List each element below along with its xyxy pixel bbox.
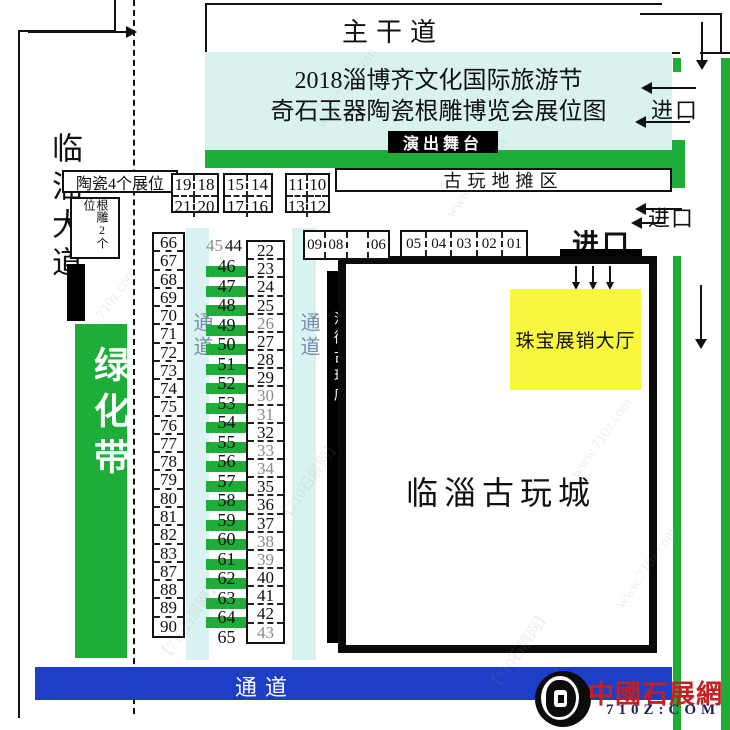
booth-cell: 60 [206, 530, 247, 549]
booth-cell: 78 [154, 453, 183, 471]
booth-cell: 87 [154, 563, 183, 581]
booth-cell: 11 [287, 175, 308, 197]
booth-cell: 57 [206, 472, 247, 491]
booth-cell: 24 [248, 278, 283, 296]
booth-cell: 37 [248, 515, 283, 533]
logo-stone-dot [558, 695, 564, 703]
gate-arrow-1 [575, 266, 577, 283]
top-booth-box: 19182120 [171, 173, 219, 213]
booth-cell: 49 [206, 316, 247, 335]
right-green-seg2 [672, 140, 685, 188]
entrance2-label: 进口 [648, 201, 694, 233]
ceramic-label-box: 陶瓷4个展位 [62, 170, 178, 193]
booth-cell: 12 [308, 197, 329, 217]
booth-cell: 23 [248, 260, 283, 278]
bottom-aisle-text: 通道 [235, 670, 295, 702]
topright-border-line [640, 13, 722, 15]
booth-cell: 70 [154, 307, 183, 325]
expo-floor-map: 主干道 临淄大道 2018淄博齐文化国际旅游节 奇石玉器陶瓷根雕博览会展位图 演… [0, 0, 730, 730]
booth-cell: 30 [248, 387, 283, 405]
entrance2-arrow-upper-head [635, 203, 646, 215]
gate-arrow-2 [592, 266, 594, 283]
shop-row-a: 090806 [303, 230, 390, 260]
booth-cell: 41 [248, 587, 283, 605]
main-road-arrow [28, 31, 126, 33]
booth-cell: 33 [248, 442, 283, 460]
booth-cell: 51 [206, 355, 247, 374]
root-label-text: 根雕2个位 [82, 199, 108, 257]
booth-cell: 35 [248, 478, 283, 496]
right-green-border [721, 58, 730, 730]
booth-cell: 04 [427, 232, 452, 256]
stall-area-box: 古玩地摊区 [335, 168, 672, 192]
booth-cell: 21 [173, 197, 195, 217]
booth-cell: 71 [154, 325, 183, 343]
booth-cell: 69 [154, 289, 183, 307]
road-left-vert-line [205, 3, 207, 53]
booth-cell: 77 [154, 435, 183, 453]
right-down-arrow-mid [700, 285, 702, 341]
booth-cell: 89 [154, 599, 183, 617]
booth-cell: 19 [173, 175, 195, 197]
booth-cell: 17 [225, 197, 248, 217]
aisle-strip-right-text: 通道 [294, 312, 323, 360]
left-border-line [18, 30, 20, 718]
booth-cell: 53 [206, 394, 247, 413]
booth-cell: 26 [248, 315, 283, 333]
booth-cell: 13 [287, 197, 308, 217]
booth-cell: 54 [206, 413, 247, 432]
booth-cell: 40 [248, 569, 283, 587]
booth-cell: 66 [154, 234, 183, 252]
stage-label-text: 演出舞台 [403, 130, 483, 154]
booth-cell: 36 [248, 496, 283, 514]
booth-cell: 02 [478, 232, 503, 256]
site-logo-url: 710Z:COM [606, 702, 720, 719]
top-booth-box: 15141716 [223, 173, 273, 213]
right-down-arrow-mid-head [695, 339, 707, 349]
booth-cell: 38 [248, 533, 283, 551]
booth-cell: 15 [225, 175, 248, 197]
booth-cell: 75 [154, 398, 183, 416]
top-booth-box: 11101312 [285, 173, 330, 213]
booth-cell: 43 [248, 624, 283, 642]
booth-cell: 10 [308, 175, 329, 197]
booth-cell: 63 [206, 589, 247, 608]
entrance1-arrow-upper [650, 87, 696, 89]
booth-cell: 65 [206, 628, 247, 647]
root-label-box: 根雕2个位 [70, 197, 120, 259]
booth-cell: 08 [326, 232, 347, 258]
booth-cell: 68 [154, 271, 183, 289]
booth-cell: 18 [195, 175, 217, 197]
ceramic-label-text: 陶瓷4个展位 [76, 170, 164, 194]
green-belt-text: 绿化带 [83, 346, 135, 484]
booth-cell: 80 [154, 490, 183, 508]
booth-cell: 61 [206, 550, 247, 569]
left-booth-column: 6667686970717273747576777879808182838788… [152, 232, 185, 638]
main-road-arrow-head [126, 26, 137, 38]
booth-cell: 09 [305, 232, 326, 258]
topright-vert-line [720, 13, 722, 53]
booth-cell: 72 [154, 344, 183, 362]
booth-cell: 22 [248, 242, 283, 260]
booth-cell: 28 [248, 351, 283, 369]
booth-cell [348, 232, 369, 258]
antique-city-name: 临淄古玩城 [406, 468, 596, 514]
booth-cell: 58 [206, 491, 247, 510]
booth-cell: 76 [154, 417, 183, 435]
booth-cell: 06 [369, 232, 388, 258]
booth-cell: 29 [248, 369, 283, 387]
top-border-line [205, 3, 662, 5]
booth-cell: 31 [248, 406, 283, 424]
booth-cell: 34 [248, 460, 283, 478]
booth-cell: 32 [248, 424, 283, 442]
topleft-vert-line [114, 0, 116, 31]
entrance1-arrow-lower-head [635, 116, 646, 128]
booth-cell: 52 [206, 374, 247, 393]
booth-cell: 56 [206, 452, 247, 471]
entrance1-arrow-lower [644, 121, 690, 123]
booth-cell: 79 [154, 471, 183, 489]
right-green-seg1 [673, 58, 681, 72]
jewelry-hall: 珠宝展销大厅 [510, 289, 641, 390]
right-booth-column: 2223242526272829303132333435363738394041… [246, 240, 285, 644]
booth-cell: 50 [206, 335, 247, 354]
gate-arrow-3 [609, 266, 611, 283]
right-green-seg3 [673, 256, 681, 730]
booth-cell: 82 [154, 526, 183, 544]
booth-cell: 88 [154, 581, 183, 599]
entrance2-arrow-lower [640, 222, 664, 224]
shop-row-b: 0504030201 [400, 230, 528, 258]
booth-cell: 48 [206, 296, 247, 315]
right-down-arrow-top [701, 22, 703, 62]
booth-cell: 47 [206, 277, 247, 296]
booth-cell: 25 [248, 297, 283, 315]
booth-cell: 03 [452, 232, 477, 256]
booth-cell: 16 [248, 197, 271, 217]
booth-cell: 74 [154, 380, 183, 398]
booth-cell: 64 [206, 608, 247, 627]
booth-cell: 73 [154, 362, 183, 380]
booth-cell: 62 [206, 569, 247, 588]
aisle-strip-right: 通道 [292, 228, 316, 660]
booth-cell: 01 [503, 232, 526, 256]
booth-cell: 55 [206, 433, 247, 452]
site-logo-emblem [535, 671, 591, 727]
green-belt: 绿化带 [75, 324, 127, 658]
booth-cell: 05 [402, 232, 427, 256]
top-road-label: 主干道 [342, 12, 444, 49]
booth-cell: 83 [154, 545, 183, 563]
stall-area-text: 古玩地摊区 [444, 167, 564, 193]
booth-cell: 27 [248, 333, 283, 351]
booth-44: 44 [225, 236, 242, 256]
right-down-arrow-top-head [696, 60, 708, 70]
booth-cell: 59 [206, 511, 247, 530]
stage-label: 演出舞台 [388, 131, 498, 153]
booth-cell: 20 [195, 197, 217, 217]
booth-cell: 39 [248, 551, 283, 569]
jewelry-hall-text: 珠宝展销大厅 [515, 326, 635, 353]
map-title-line1: 2018淄博齐文化国际旅游节 [205, 60, 672, 95]
booth-cell: 67 [154, 252, 183, 270]
booth-cell: 14 [248, 175, 271, 197]
topright-corner-line [700, 52, 730, 54]
booth-45: 45 [206, 236, 223, 256]
entrance2-arrow-lower-head [631, 217, 642, 229]
booth-cell: 81 [154, 508, 183, 526]
booth-cell: 42 [248, 605, 283, 623]
map-title-line2: 奇石玉器陶瓷根雕博览会展位图 [205, 91, 672, 126]
booth-cell: 46 [206, 257, 247, 276]
black-block [67, 264, 85, 321]
booth-cell: 90 [154, 618, 183, 636]
